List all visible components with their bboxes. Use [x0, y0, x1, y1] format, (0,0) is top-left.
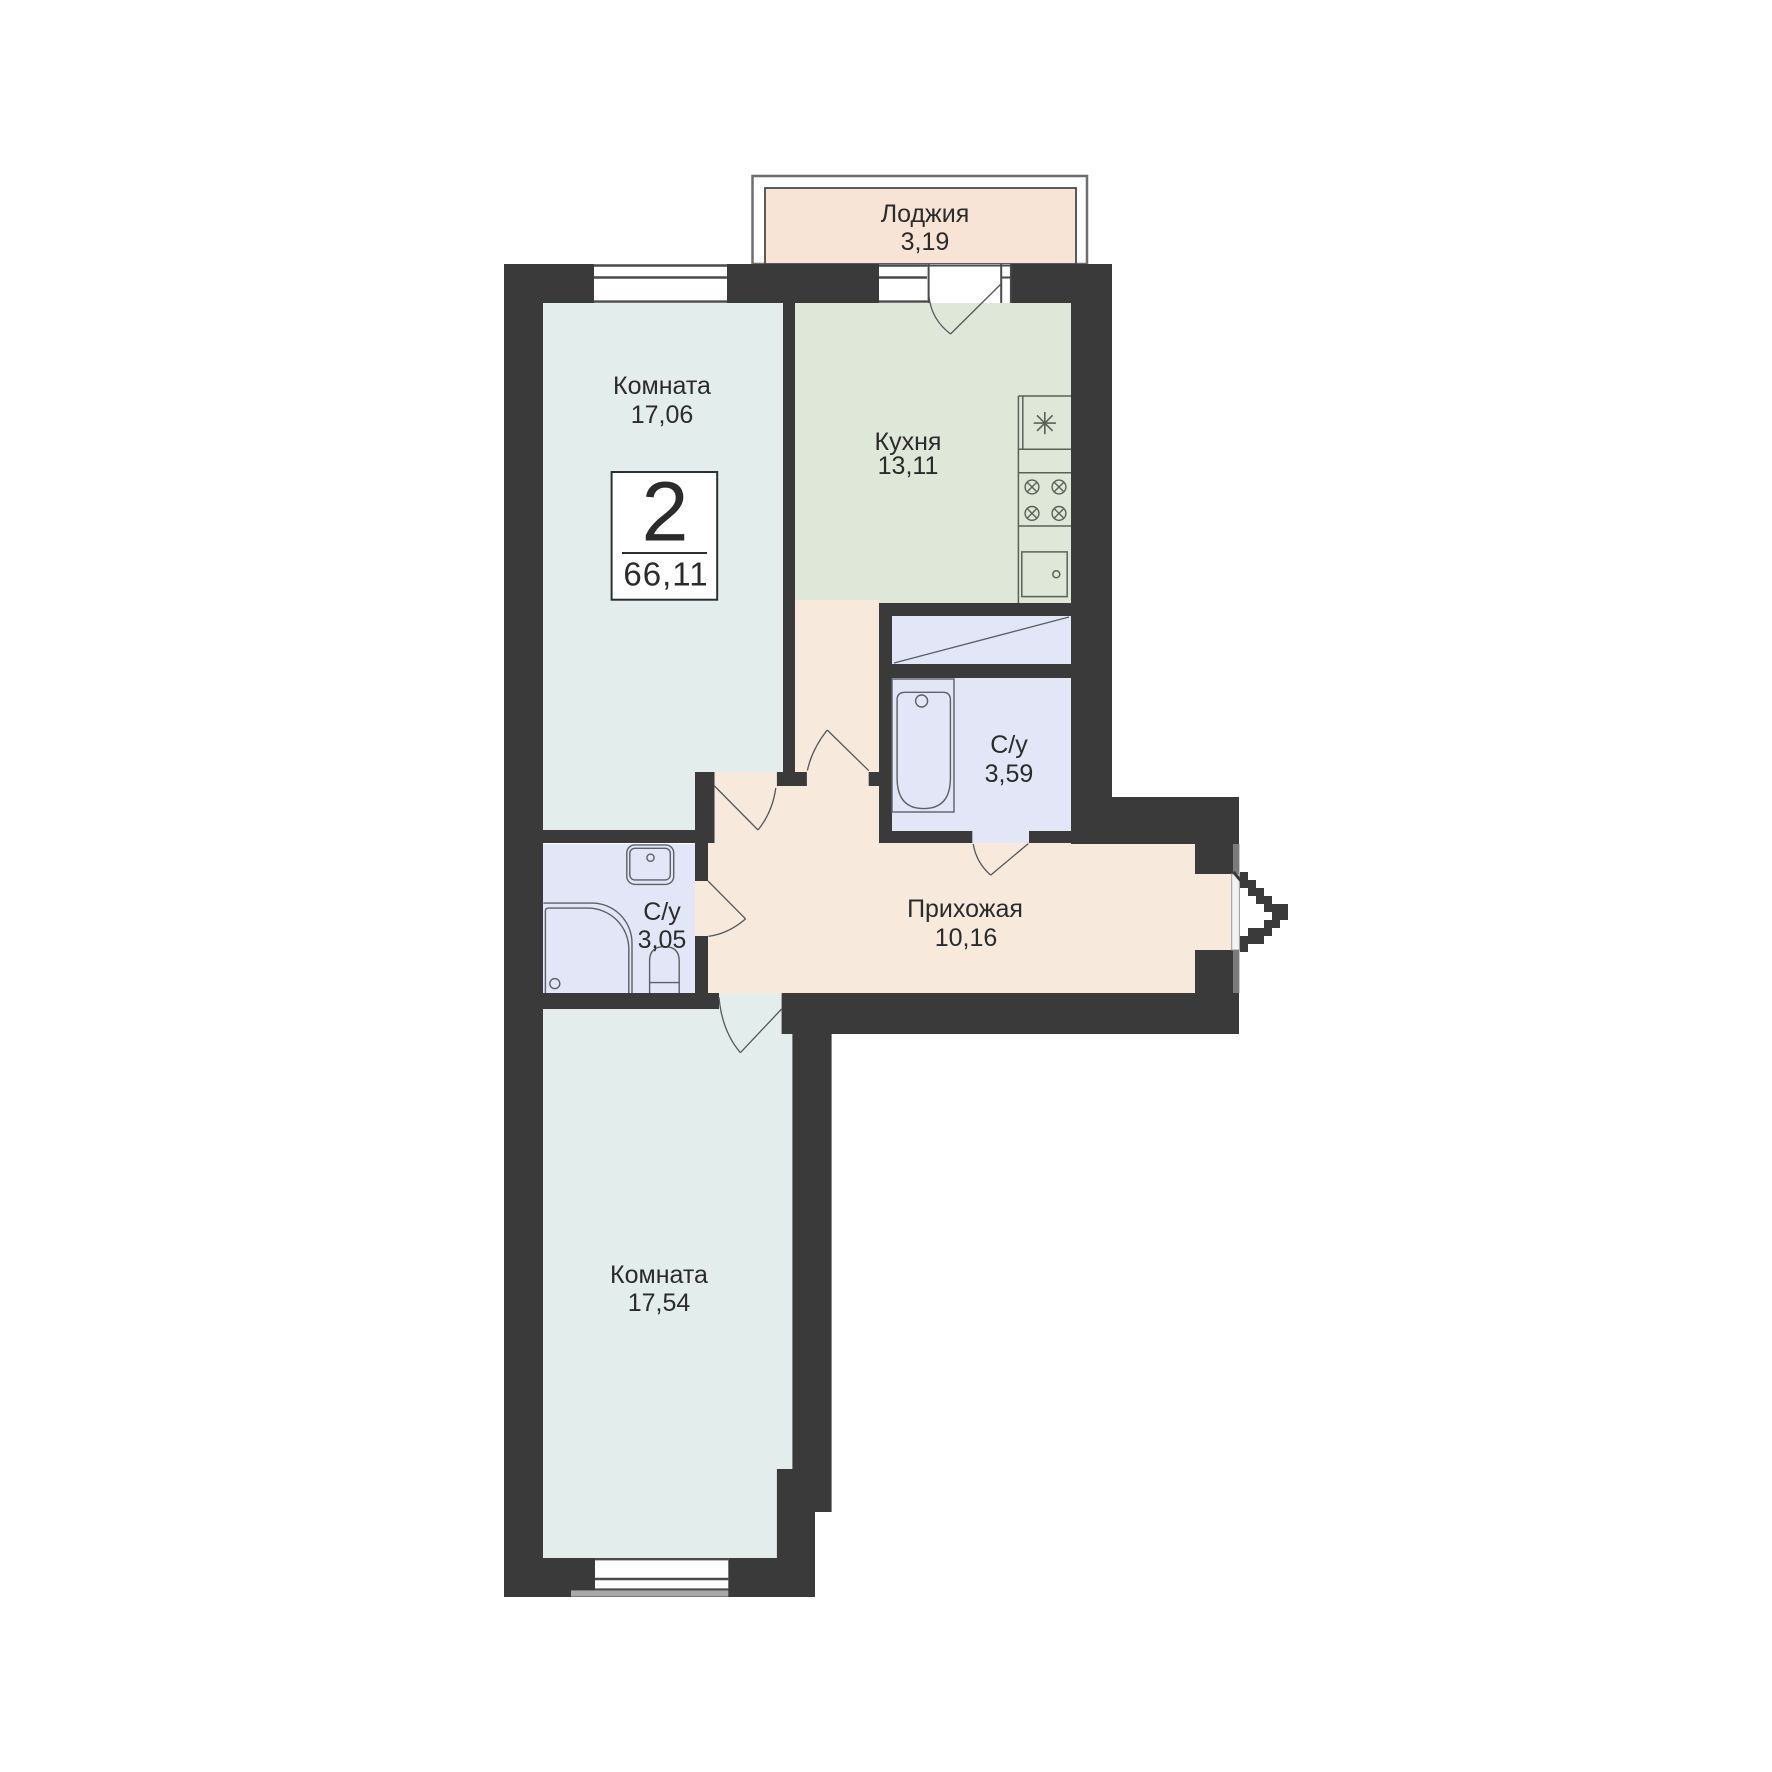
- svg-text:66,11: 66,11: [623, 556, 708, 593]
- svg-text:2: 2: [642, 465, 689, 559]
- svg-text:Комната: Комната: [610, 1261, 708, 1289]
- svg-text:С/у: С/у: [643, 898, 681, 926]
- svg-text:17,54: 17,54: [628, 1289, 691, 1317]
- svg-text:10,16: 10,16: [935, 924, 998, 952]
- svg-text:Лоджия: Лоджия: [881, 200, 970, 228]
- svg-text:17,06: 17,06: [631, 401, 694, 429]
- svg-text:3,59: 3,59: [985, 760, 1034, 788]
- svg-text:3,05: 3,05: [638, 926, 687, 954]
- svg-text:С/у: С/у: [990, 731, 1028, 759]
- svg-text:Комната: Комната: [613, 372, 711, 400]
- svg-text:13,11: 13,11: [878, 452, 939, 480]
- svg-text:3,19: 3,19: [901, 228, 950, 256]
- svg-text:Прихожая: Прихожая: [907, 895, 1023, 923]
